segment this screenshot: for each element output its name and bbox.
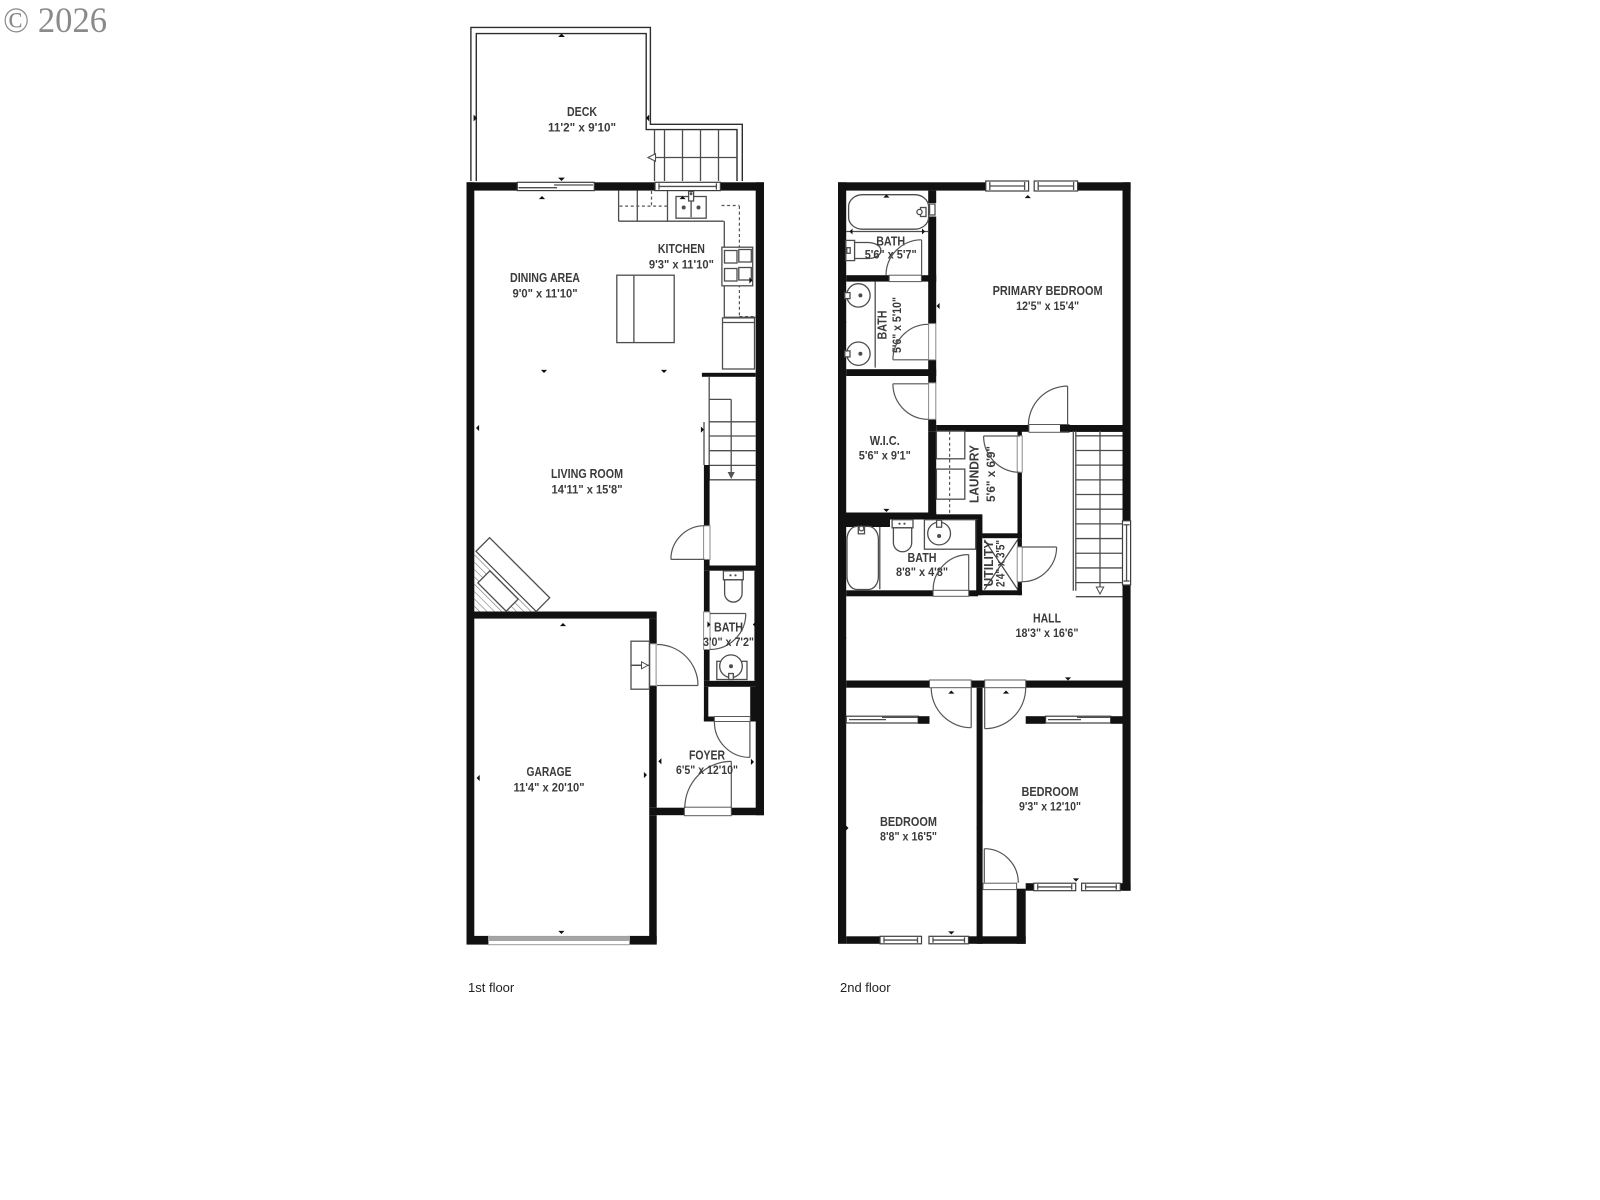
svg-text:12'5" x 15'4": 12'5" x 15'4" [1016, 299, 1079, 313]
svg-text:14'11" x 15'8": 14'11" x 15'8" [552, 483, 623, 497]
svg-text:5'6" x 9'1": 5'6" x 9'1" [859, 449, 911, 463]
svg-text:© 2026: © 2026 [3, 0, 107, 40]
svg-text:BEDROOM: BEDROOM [1022, 785, 1079, 799]
svg-text:DECK: DECK [567, 105, 597, 119]
svg-text:9'0" x 11'10": 9'0" x 11'10" [513, 287, 578, 301]
svg-text:BATH: BATH [876, 311, 890, 340]
svg-text:8'8" x 16'5": 8'8" x 16'5" [880, 830, 937, 844]
svg-text:KITCHEN: KITCHEN [658, 242, 705, 256]
svg-text:5'6" x 5'7": 5'6" x 5'7" [865, 248, 917, 262]
svg-text:2'4" x 3'5": 2'4" x 3'5" [994, 540, 1008, 587]
svg-text:8'8" x 4'8": 8'8" x 4'8" [896, 565, 948, 579]
svg-text:HALL: HALL [1033, 612, 1061, 626]
svg-text:LIVING ROOM: LIVING ROOM [551, 467, 623, 481]
svg-text:3'0" x 7'2": 3'0" x 7'2" [703, 635, 754, 649]
svg-text:9'3" x 11'10": 9'3" x 11'10" [649, 258, 714, 272]
svg-text:2nd floor: 2nd floor [840, 980, 891, 995]
svg-text:W.I.C.: W.I.C. [870, 434, 900, 448]
svg-text:18'3" x 16'6": 18'3" x 16'6" [1016, 626, 1079, 640]
svg-text:PRIMARY BEDROOM: PRIMARY BEDROOM [993, 284, 1103, 298]
svg-text:11'2" x 9'10": 11'2" x 9'10" [548, 121, 616, 135]
svg-text:1st floor: 1st floor [468, 980, 515, 995]
svg-text:BATH: BATH [908, 551, 937, 565]
svg-text:FOYER: FOYER [689, 749, 725, 763]
svg-text:9'3" x 12'10": 9'3" x 12'10" [1019, 800, 1081, 814]
svg-text:11'4" x 20'10": 11'4" x 20'10" [514, 781, 585, 795]
svg-text:BEDROOM: BEDROOM [880, 815, 937, 829]
svg-text:5'6" x 5'10": 5'6" x 5'10" [890, 297, 904, 353]
svg-text:LAUNDRY: LAUNDRY [968, 444, 982, 503]
svg-text:GARAGE: GARAGE [527, 765, 572, 779]
svg-text:5'6" x 6'9": 5'6" x 6'9" [984, 446, 998, 502]
svg-text:DINING AREA: DINING AREA [510, 271, 580, 285]
svg-text:6'5" x 12'10": 6'5" x 12'10" [676, 763, 738, 777]
svg-text:BATH: BATH [714, 621, 743, 635]
